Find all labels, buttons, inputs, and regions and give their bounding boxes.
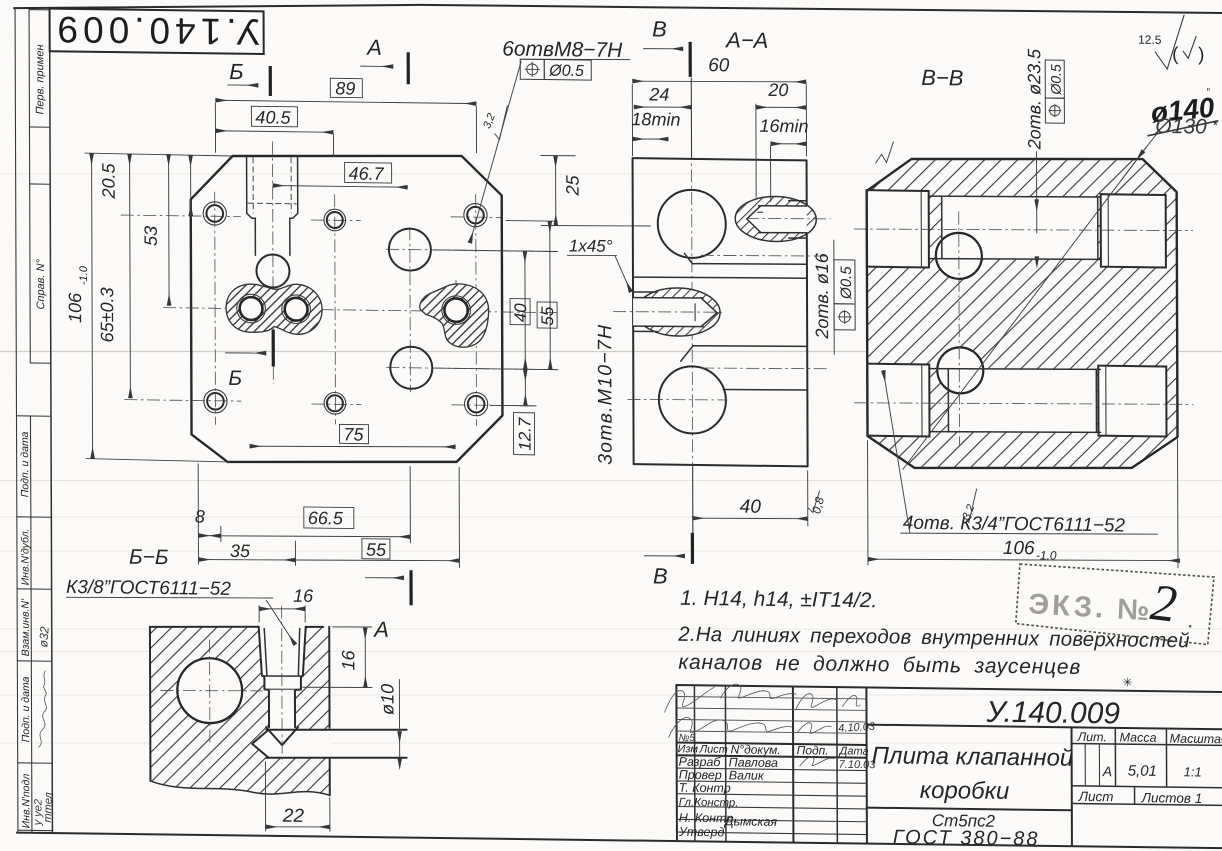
svg-text:Б−Б: Б−Б — [129, 546, 169, 570]
svg-text:106: 106 — [1003, 538, 1035, 559]
svg-text:106: 106 — [65, 292, 85, 323]
svg-text:У.140.009: У.140.009 — [985, 696, 1120, 731]
svg-text:ГОСТ 380−88: ГОСТ 380−88 — [893, 826, 1040, 850]
svg-text:✳: ✳ — [1122, 675, 1132, 689]
svg-text:А: А — [372, 617, 389, 642]
svg-text:Ø0.5: Ø0.5 — [838, 266, 855, 300]
svg-text:Масса: Масса — [1120, 730, 1157, 744]
svg-text:Утверд: Утверд — [678, 825, 725, 840]
svg-text:А: А — [1102, 763, 1112, 779]
svg-text:1:1: 1:1 — [1184, 764, 1202, 779]
svg-text:16: 16 — [338, 649, 358, 670]
svg-text:8: 8 — [195, 506, 205, 526]
svg-text:Масштаб: Масштаб — [1170, 732, 1222, 747]
svg-text:2отв. ø23.5: 2отв. ø23.5 — [1024, 48, 1044, 151]
svg-text:60: 60 — [708, 55, 730, 76]
svg-text:Перв. примен: Перв. примен — [34, 44, 46, 114]
svg-text:Дата: Дата — [838, 745, 869, 757]
svg-text:20: 20 — [767, 80, 788, 100]
svg-text:12.5: 12.5 — [1138, 33, 1162, 47]
svg-text:Б: Б — [228, 367, 242, 390]
svg-text:Лит.: Лит. — [1077, 730, 1107, 744]
svg-text:5,01: 5,01 — [1128, 763, 1157, 780]
svg-text:В: В — [653, 563, 668, 588]
svg-text:Гл.Констр.: Гл.Констр. — [679, 797, 739, 810]
svg-text:): ) — [1198, 44, 1204, 65]
svg-text:65±0.3: 65±0.3 — [97, 287, 117, 342]
svg-text:89: 89 — [335, 78, 355, 98]
svg-text:(: ( — [1172, 44, 1179, 65]
svg-text:12.7: 12.7 — [515, 417, 534, 451]
svg-text:Подп. и дата: Подп. и дата — [20, 676, 32, 742]
svg-text:Валик: Валик — [729, 768, 765, 782]
svg-text:Плита клапанной: Плита клапанной — [872, 742, 1074, 772]
svg-text:75: 75 — [343, 424, 364, 444]
svg-text:ø10: ø10 — [377, 684, 397, 715]
svg-text:18min: 18min — [631, 109, 680, 130]
svg-text:Т. Контр: Т. Контр — [679, 781, 731, 796]
svg-text:Листов 1: Листов 1 — [1141, 790, 1202, 806]
svg-text:Взам.инв.N′: Взам.инв.N′ — [20, 598, 32, 656]
svg-text:В: В — [652, 16, 667, 41]
svg-text:35: 35 — [230, 541, 251, 561]
svg-text:Инв.N′подл: Инв.N′подл — [20, 774, 32, 829]
svg-text:Дымская: Дымская — [723, 814, 778, 829]
svg-text:Справ. N°: Справ. N° — [35, 258, 47, 309]
svg-text:Подп. и дата: Подп. и дата — [19, 431, 31, 497]
svg-text:ø32: ø32 — [36, 626, 51, 648]
svg-text:Лист: Лист — [699, 743, 728, 755]
svg-text:2отв. ø16: 2отв. ø16 — [812, 252, 832, 340]
svg-text:Инв.N′дубл.: Инв.N′дубл. — [19, 528, 31, 585]
svg-text:1х45°: 1х45° — [569, 236, 613, 256]
svg-text:4.10.03: 4.10.03 — [838, 721, 876, 735]
svg-text:У.140.009: У.140.009 — [52, 9, 260, 53]
svg-text:24: 24 — [648, 84, 669, 104]
svg-text:коробки: коробки — [920, 777, 1010, 805]
svg-text:40.5: 40.5 — [255, 107, 291, 127]
svg-text:16min: 16min — [759, 116, 808, 137]
svg-text:Изм: Изм — [678, 743, 699, 755]
svg-text:ттел: ттел — [42, 792, 55, 823]
svg-text:25: 25 — [563, 174, 583, 196]
svg-text:20.5: 20.5 — [99, 162, 119, 199]
svg-text:3отв.М10−7Н: 3отв.М10−7Н — [594, 324, 616, 465]
svg-text:40: 40 — [740, 497, 762, 518]
svg-text:Ø130: Ø130 — [1154, 115, 1207, 139]
svg-text:Ø0.5: Ø0.5 — [1048, 64, 1064, 96]
svg-text:В−В: В−В — [921, 65, 963, 91]
svg-text:1. Н14, h14, ±IT14/2.: 1. Н14, h14, ±IT14/2. — [680, 587, 877, 613]
svg-text:55: 55 — [538, 306, 557, 326]
svg-text:6отвМ8−7Н: 6отвМ8−7Н — [502, 37, 623, 62]
svg-text:Лист: Лист — [1078, 789, 1114, 804]
svg-text:55: 55 — [366, 540, 387, 560]
svg-text:22: 22 — [282, 806, 305, 827]
svg-text:7.10.03: 7.10.03 — [839, 759, 877, 771]
svg-text:.: . — [1187, 607, 1194, 632]
svg-text:40: 40 — [511, 303, 530, 323]
svg-text:К3/8”ГОСТ6111−52: К3/8”ГОСТ6111−52 — [66, 577, 231, 600]
svg-text:Б: Б — [229, 59, 243, 84]
svg-text:16: 16 — [293, 586, 314, 606]
svg-text:53: 53 — [141, 226, 161, 246]
svg-text:Подп.: Подп. — [797, 743, 829, 757]
svg-text:А: А — [365, 35, 382, 60]
svg-text:Ø0.5: Ø0.5 — [548, 63, 584, 80]
svg-text:А−А: А−А — [724, 27, 768, 53]
svg-text:-1.0: -1.0 — [78, 265, 90, 285]
svg-text:№5: №5 — [679, 733, 696, 744]
svg-text:66.5: 66.5 — [308, 508, 344, 528]
svg-text:46.7: 46.7 — [349, 163, 385, 183]
